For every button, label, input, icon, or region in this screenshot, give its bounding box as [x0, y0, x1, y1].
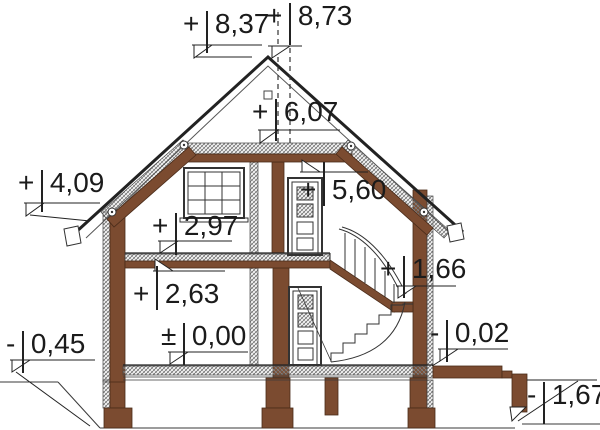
level-label-ground-ceiling: +2,63	[133, 280, 219, 310]
ground-door	[289, 287, 321, 365]
foundations	[103, 378, 435, 428]
level-sign: ±	[161, 322, 176, 350]
level-sign: -	[527, 381, 536, 409]
level-value: 2,97	[184, 212, 239, 240]
level-value: 8,37	[215, 10, 270, 38]
level-label-chimney-top: +8,73	[266, 2, 352, 45]
level-value: 0,00	[192, 322, 247, 350]
level-sign: +	[300, 176, 316, 204]
level-label-first-floor-top: +2,97	[152, 212, 238, 255]
level-tick-line	[175, 213, 177, 255]
level-label-stair-landing: +1,66	[380, 255, 466, 298]
level-sign: -	[6, 330, 15, 358]
level-value: 8,73	[298, 2, 353, 30]
level-value: 1,66	[412, 255, 467, 283]
ground-lines	[0, 382, 600, 428]
level-value: 4,09	[50, 169, 105, 197]
level-label-ground-floor: ±0,00	[161, 322, 246, 365]
level-tick-line	[41, 170, 43, 212]
level-tick-line	[22, 331, 24, 373]
level-label-grade-right: -1,67	[527, 381, 600, 424]
level-value: 6,07	[284, 98, 339, 126]
level-sign: +	[152, 212, 168, 240]
level-tick-line	[289, 3, 291, 45]
level-sign: +	[133, 280, 149, 308]
level-tick-line	[323, 162, 325, 206]
level-tick-line	[156, 266, 158, 310]
level-value: 0,02	[455, 319, 510, 347]
level-sign: +	[18, 169, 34, 197]
level-label-attic-ceiling: +5,60	[300, 176, 386, 206]
level-label-eaves: +4,09	[18, 169, 104, 212]
level-value: 5,60	[332, 176, 387, 204]
level-label-attic-ceiling-top: +6,07	[252, 98, 338, 141]
level-sign: +	[266, 2, 282, 30]
level-tick-line	[446, 320, 448, 362]
level-tick-line	[206, 11, 208, 53]
level-sign: +	[183, 10, 199, 38]
level-sign: +	[380, 255, 396, 283]
level-label-ridge: +8,37	[183, 10, 269, 53]
level-sign: -	[430, 319, 439, 347]
level-tick-line	[275, 99, 277, 141]
level-tick-line	[403, 256, 405, 298]
level-value: 2,63	[165, 280, 220, 308]
terrace	[433, 366, 527, 412]
level-sign: +	[252, 98, 268, 126]
level-tick-line	[543, 382, 545, 424]
level-label-grade-left: -0,45	[6, 330, 85, 373]
level-value: 1,67	[552, 381, 600, 409]
level-label-terrace: -0,02	[430, 319, 509, 362]
cross-section-canvas: +8,37 +8,73 +6,07 +5,60 +4,09 +2,97 +2,6…	[0, 0, 600, 430]
level-value: 0,45	[31, 330, 86, 358]
section-linework	[0, 0, 600, 430]
level-tick-line	[183, 323, 185, 365]
